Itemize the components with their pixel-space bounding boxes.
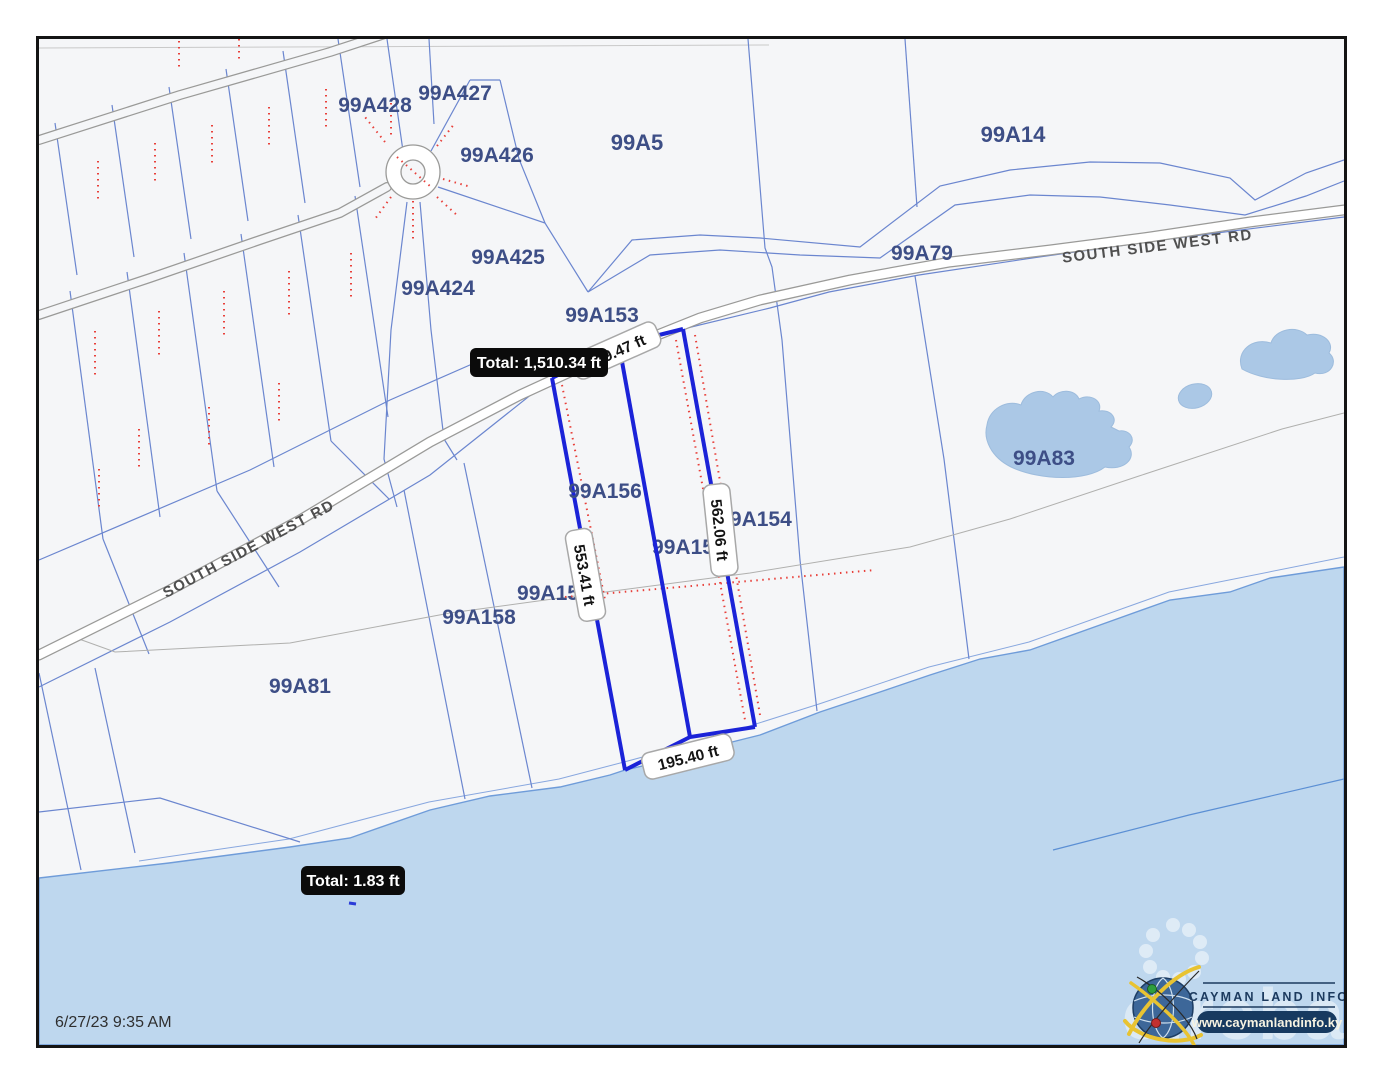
parcel-label-99a425: 99A425 <box>471 246 545 269</box>
parcel-label-99a427: 99A427 <box>418 82 492 105</box>
svg-text:Total: 1,510.34 ft: Total: 1,510.34 ft <box>477 355 602 372</box>
measured-point <box>349 903 356 904</box>
svg-text:Total: 1.83 ft: Total: 1.83 ft <box>306 873 400 890</box>
parcel-label-99a5: 99A5 <box>611 130 664 155</box>
logo-title: CAYMAN LAND INFO <box>1189 990 1344 1004</box>
parcel-label-99a424: 99A424 <box>401 277 475 300</box>
parcel-label-99a158: 99A158 <box>442 606 516 629</box>
parcel-label-99a14: 99A14 <box>981 122 1047 147</box>
parcel-label-99a426: 99A426 <box>460 144 534 167</box>
parcel-label-99a155: 99A15 <box>652 536 714 559</box>
parcel-label-99a83: 99A83 <box>1013 447 1075 470</box>
parcel-label-99a81: 99A81 <box>269 675 331 698</box>
parcel-label-99a79: 99A79 <box>891 242 953 265</box>
parcel-label-99a428: 99A428 <box>338 94 412 117</box>
logo-url: www.caymanlandinfo.ky <box>1191 1015 1343 1030</box>
perimeter-total-tooltip: Total: 1,510.34 ft <box>470 348 608 377</box>
export-timestamp: 6/27/23 9:35 AM <box>55 1014 172 1031</box>
parcel-label-99a157: 99A15 <box>517 582 579 605</box>
parcel-label-99a153: 99A153 <box>565 304 639 327</box>
map-canvas[interactable]: 99A15 99A15 99A428 99A427 99A426 99A5 99… <box>36 36 1347 1048</box>
parcel-label-99a156: 99A156 <box>568 480 642 503</box>
